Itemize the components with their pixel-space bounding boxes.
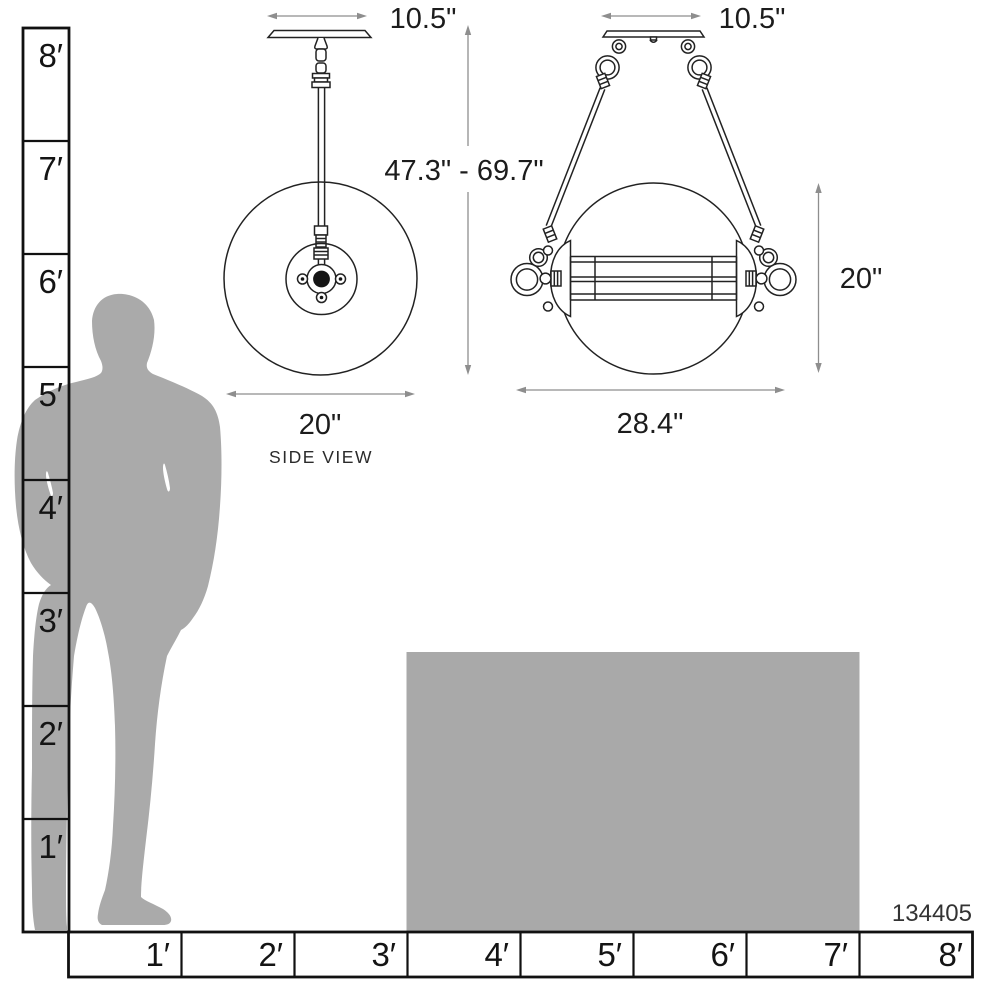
front-right-rod: [702, 89, 756, 227]
front-top-ring-inner: [692, 60, 707, 75]
horizontal-ruler-label: 5′: [597, 936, 622, 973]
vertical-ruler-label: 5′: [38, 376, 63, 413]
front-cap-knob: [755, 302, 764, 311]
side-view-drawing: [224, 31, 417, 376]
horizontal-ruler-label: 1′: [145, 936, 170, 973]
front-cap-knob: [544, 302, 553, 311]
front-side-ring-inner: [516, 269, 537, 290]
side-view-caption: SIDE VIEW: [269, 447, 373, 467]
arrowhead-up: [815, 183, 821, 193]
product-code: 134405: [892, 900, 972, 927]
arrowhead-left: [226, 391, 236, 397]
front-width-dim-label: 28.4": [617, 408, 684, 440]
vertical-ruler-label: 7′: [38, 150, 63, 187]
front-small-ring-inner: [763, 252, 773, 262]
front-cap-knob: [755, 246, 764, 255]
height-range-dim-label: 47.3" - 69.7": [384, 155, 543, 187]
side-canopy: [268, 31, 371, 38]
vertical-ruler-label: 2′: [38, 715, 63, 752]
arrowhead-left: [601, 13, 611, 19]
arrowhead-down: [465, 365, 471, 375]
horizontal-ruler-label: 4′: [484, 936, 509, 973]
horizontal-ruler-label: 3′: [371, 936, 396, 973]
arrowhead-right: [405, 391, 415, 397]
arrowhead-down: [815, 363, 821, 373]
front-sphere-outline: [558, 183, 749, 374]
arrowhead-right: [775, 387, 785, 393]
vertical-ruler-label: 6′: [38, 263, 63, 300]
horizontal-ruler-label: 2′: [258, 936, 283, 973]
front-eyelet-inner: [685, 43, 691, 49]
front-canopy: [603, 31, 704, 37]
shade-height-dim-label: 20": [840, 263, 883, 295]
scale-diagram: 10.5" 10.5" 47.3" - 69.7" 20" SIDE VIEW …: [0, 0, 1000, 1000]
front-eyelet: [612, 40, 625, 53]
front-rod-end-coupler: [750, 226, 764, 242]
front-band: [571, 257, 737, 301]
side-bolt: [336, 274, 346, 284]
side-turnbuckle-lower: [316, 63, 326, 73]
side-bolt: [298, 274, 308, 284]
horizontal-ruler: 1′ 2′ 3′ 4′ 5′ 6′ 7′ 8′: [69, 932, 973, 977]
front-left-rod: [551, 89, 605, 227]
horizontal-ruler-label: 8′: [938, 936, 963, 973]
horizontal-ruler-label: 6′: [710, 936, 735, 973]
side-stem-fitting: [315, 226, 328, 235]
horizontal-ruler-label: 7′: [823, 936, 848, 973]
side-coupler: [312, 82, 330, 88]
front-cap-knuckle: [756, 273, 767, 284]
front-cap-hub: [551, 271, 561, 286]
side-diameter-dim-label: 20": [299, 409, 342, 441]
arrowhead-right: [357, 13, 367, 19]
front-rod-end-coupler: [543, 226, 557, 242]
front-canopy-dim-label: 10.5": [719, 3, 786, 35]
front-cap-knuckle: [540, 273, 551, 284]
front-canopy-screw: [651, 37, 657, 40]
front-eyelet: [681, 40, 694, 53]
vertical-ruler-label: 3′: [38, 602, 63, 639]
side-hub-ball: [313, 271, 330, 288]
front-cap-hub: [746, 271, 756, 286]
arrowhead-left: [267, 13, 277, 19]
arrowhead-left: [516, 387, 526, 393]
vertical-ruler-label: 1′: [38, 828, 63, 865]
front-cap-knob: [544, 246, 553, 255]
front-top-ring-inner: [600, 60, 615, 75]
front-eyelet-inner: [616, 43, 622, 49]
front-small-ring-inner: [533, 252, 543, 262]
side-stem-fitting: [316, 235, 326, 247]
arrowhead-right: [691, 13, 701, 19]
side-hang-loop: [315, 38, 328, 49]
side-canopy-dim-label: 10.5": [390, 3, 457, 35]
front-side-ring-inner: [769, 269, 790, 290]
side-turnbuckle: [316, 49, 326, 61]
front-view-drawing: [511, 31, 796, 374]
vertical-ruler-label: 8′: [38, 37, 63, 74]
side-bolt: [317, 293, 327, 303]
arrowhead-up: [465, 25, 471, 35]
side-collar: [314, 248, 328, 259]
vertical-ruler-label: 4′: [38, 489, 63, 526]
table-block: [407, 652, 860, 932]
